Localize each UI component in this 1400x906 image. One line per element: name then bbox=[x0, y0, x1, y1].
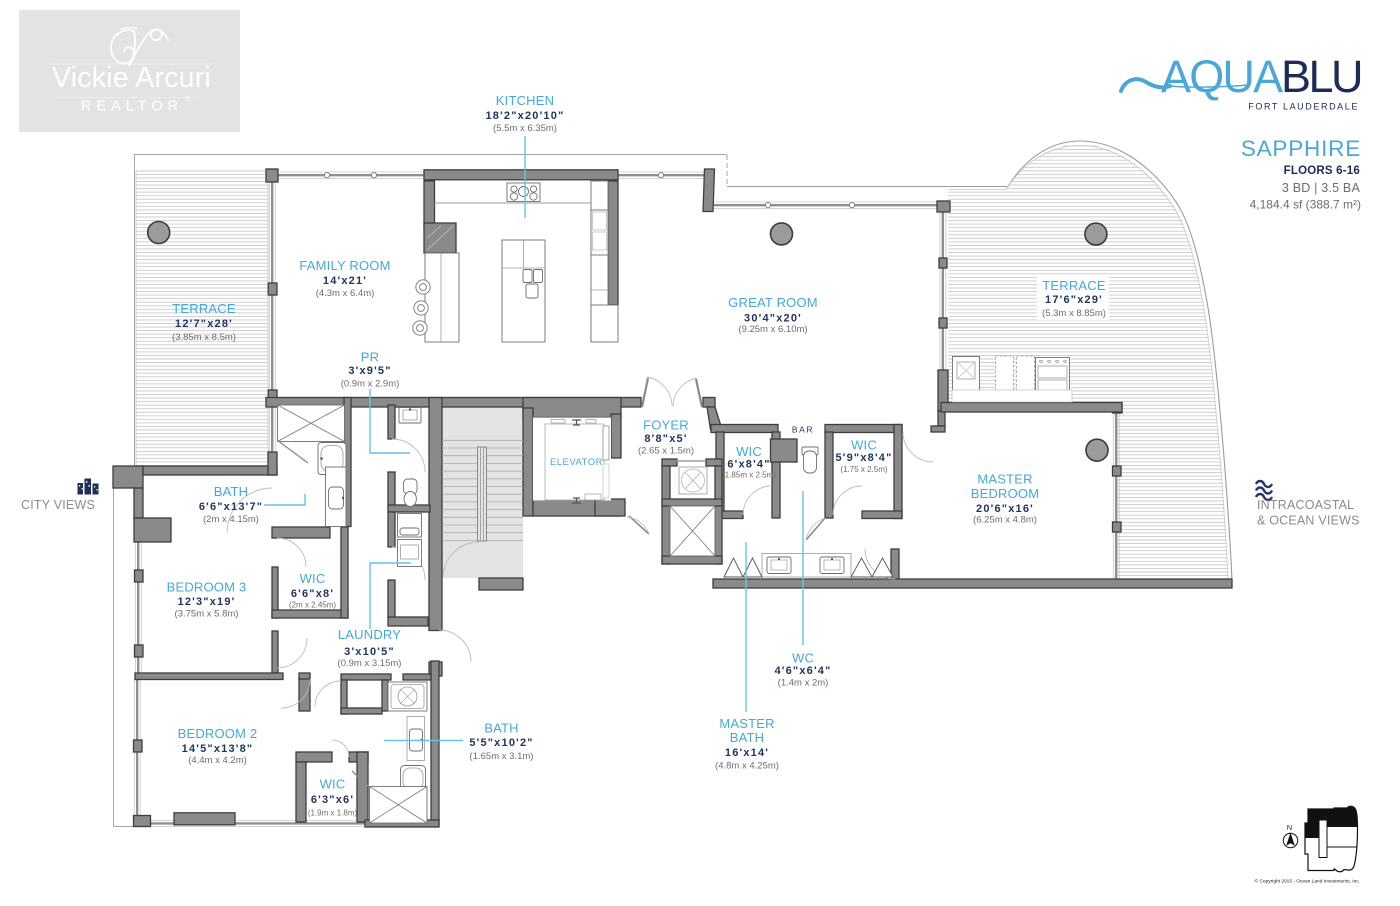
svg-text:12'3"x19': 12'3"x19' bbox=[178, 596, 236, 608]
svg-text:(5.5m x 6.35m): (5.5m x 6.35m) bbox=[493, 123, 557, 134]
svg-text:CITY VIEWS: CITY VIEWS bbox=[21, 498, 95, 512]
svg-text:& OCEAN VIEWS: & OCEAN VIEWS bbox=[1257, 514, 1360, 528]
svg-text:5'5"x10'2": 5'5"x10'2" bbox=[469, 737, 533, 749]
svg-text:(6.25m x 4.8m): (6.25m x 4.8m) bbox=[973, 515, 1037, 526]
svg-text:4'6"x6'4": 4'6"x6'4" bbox=[774, 665, 831, 677]
svg-text:GREAT ROOM: GREAT ROOM bbox=[728, 295, 818, 310]
svg-text:(1.75 x 2.5m): (1.75 x 2.5m) bbox=[840, 465, 887, 474]
svg-text:FORT LAUDERDALE: FORT LAUDERDALE bbox=[1248, 102, 1359, 112]
svg-text:BATH: BATH bbox=[730, 730, 765, 745]
svg-text:(2m x 2.45m): (2m x 2.45m) bbox=[289, 601, 336, 610]
svg-text:®: ® bbox=[185, 95, 191, 103]
svg-text:(2.65 x 1.5m): (2.65 x 1.5m) bbox=[638, 446, 694, 457]
svg-text:PR: PR bbox=[361, 350, 379, 365]
svg-text:WIC: WIC bbox=[736, 444, 762, 459]
svg-text:(0.9m x 2.9m): (0.9m x 2.9m) bbox=[341, 379, 400, 390]
svg-text:© Copyright 2015 - Ocean Land: © Copyright 2015 - Ocean Land Investment… bbox=[1255, 878, 1360, 885]
svg-text:18'2"x20'10": 18'2"x20'10" bbox=[485, 110, 564, 122]
svg-text:6'6"x8': 6'6"x8' bbox=[291, 588, 334, 600]
svg-text:30'4"x20': 30'4"x20' bbox=[744, 313, 802, 325]
svg-text:20'6"x16': 20'6"x16' bbox=[976, 503, 1034, 515]
svg-text:BATH: BATH bbox=[214, 484, 249, 499]
svg-text:TERRACE: TERRACE bbox=[1042, 278, 1106, 293]
svg-text:WIC: WIC bbox=[320, 777, 346, 792]
svg-text:BLU: BLU bbox=[1281, 51, 1361, 102]
svg-text:(3.85m x 8.5m): (3.85m x 8.5m) bbox=[172, 332, 236, 343]
svg-text:WC: WC bbox=[792, 651, 814, 666]
svg-text:(4.3m x 6.4m): (4.3m x 6.4m) bbox=[316, 288, 375, 299]
svg-text:AQUA: AQUA bbox=[1161, 51, 1283, 102]
svg-text:BAR: BAR bbox=[792, 425, 814, 435]
svg-text:(4.4m x 4.2m): (4.4m x 4.2m) bbox=[188, 755, 247, 766]
svg-text:(5.3m x 8.85m): (5.3m x 8.85m) bbox=[1042, 308, 1106, 319]
svg-text:MASTER: MASTER bbox=[719, 716, 774, 731]
svg-text:SAPPHIRE: SAPPHIRE bbox=[1241, 136, 1361, 161]
svg-text:14'x21': 14'x21' bbox=[323, 275, 367, 287]
svg-text:(1.9m x 1.8m): (1.9m x 1.8m) bbox=[308, 809, 358, 818]
svg-text:BEDROOM 2: BEDROOM 2 bbox=[178, 726, 258, 741]
svg-text:3 BD | 3.5 BA: 3 BD | 3.5 BA bbox=[1282, 181, 1361, 195]
svg-text:LAUNDRY: LAUNDRY bbox=[338, 627, 401, 642]
svg-text:(4.8m x 4.25m): (4.8m x 4.25m) bbox=[715, 761, 779, 772]
svg-text:12'7"x28': 12'7"x28' bbox=[175, 318, 233, 330]
svg-text:14'5"x13'8": 14'5"x13'8" bbox=[182, 743, 254, 755]
svg-text:ELEVATOR: ELEVATOR bbox=[550, 457, 603, 468]
svg-text:REALTOR: REALTOR bbox=[81, 99, 183, 115]
svg-text:(0.9m x 3.15m): (0.9m x 3.15m) bbox=[338, 658, 402, 669]
svg-text:(9.25m x 6.10m): (9.25m x 6.10m) bbox=[738, 324, 807, 335]
svg-text:3'x9'5": 3'x9'5" bbox=[348, 365, 391, 377]
svg-text:KITCHEN: KITCHEN bbox=[496, 93, 554, 108]
svg-text:(1.65m x 3.1m): (1.65m x 3.1m) bbox=[470, 751, 534, 762]
svg-text:BEDROOM 3: BEDROOM 3 bbox=[167, 580, 247, 595]
svg-text:INTRACOASTAL: INTRACOASTAL bbox=[1257, 498, 1354, 512]
svg-text:(1.4m x 2m): (1.4m x 2m) bbox=[778, 678, 829, 689]
svg-text:FLOORS 6-16: FLOORS 6-16 bbox=[1284, 165, 1360, 177]
svg-text:3'x10'5": 3'x10'5" bbox=[344, 646, 395, 658]
svg-text:WIC: WIC bbox=[300, 571, 326, 586]
svg-text:16'x14': 16'x14' bbox=[725, 747, 769, 759]
svg-text:4,184.4 sf (388.7 m²): 4,184.4 sf (388.7 m²) bbox=[1250, 198, 1361, 212]
svg-text:BATH: BATH bbox=[484, 721, 519, 736]
svg-text:BEDROOM: BEDROOM bbox=[971, 486, 1040, 501]
svg-text:6'x8'4": 6'x8'4" bbox=[727, 459, 770, 471]
svg-text:FAMILY ROOM: FAMILY ROOM bbox=[299, 258, 390, 273]
svg-text:N: N bbox=[1287, 823, 1292, 832]
svg-text:WIC: WIC bbox=[851, 438, 877, 453]
svg-text:8'8"x5': 8'8"x5' bbox=[644, 433, 687, 445]
svg-text:6'3"x6': 6'3"x6' bbox=[311, 794, 354, 806]
svg-text:(3.75m x 5.8m): (3.75m x 5.8m) bbox=[175, 609, 239, 620]
svg-text:5'9"x8'4": 5'9"x8'4" bbox=[835, 452, 892, 464]
svg-text:17'6"x29': 17'6"x29' bbox=[1045, 294, 1103, 306]
svg-text:MASTER: MASTER bbox=[977, 472, 1032, 487]
svg-text:FOYER: FOYER bbox=[643, 418, 689, 433]
svg-text:Vickie Arcuri: Vickie Arcuri bbox=[52, 62, 211, 94]
svg-text:(1.85m x 2.5m): (1.85m x 2.5m) bbox=[722, 471, 776, 480]
svg-text:(2m x 4.15m): (2m x 4.15m) bbox=[203, 514, 259, 525]
svg-text:6'6"x13'7": 6'6"x13'7" bbox=[199, 501, 263, 513]
svg-text:TERRACE: TERRACE bbox=[172, 301, 236, 316]
